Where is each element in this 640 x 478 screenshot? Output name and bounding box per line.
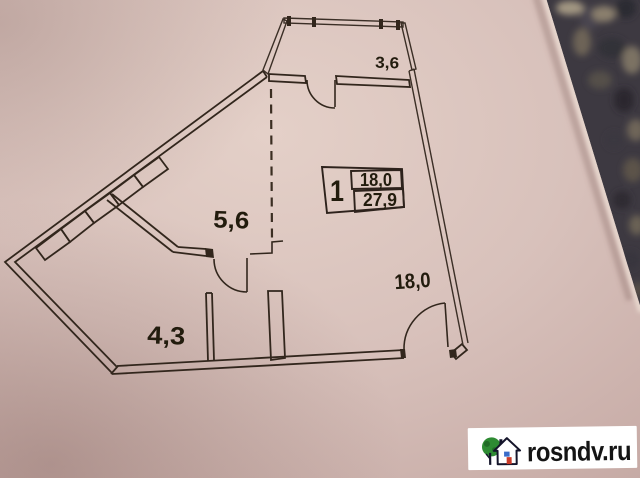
balcony-window-post <box>287 16 291 26</box>
table-total-area-value: 27,9 <box>363 190 397 210</box>
watermark: rosndv.ru <box>468 426 638 470</box>
balcony-window-post <box>312 17 316 27</box>
label-room-area: 18,0 <box>394 269 432 294</box>
watermark-site-text: rosndv.ru <box>527 436 631 467</box>
house-window <box>504 452 510 457</box>
entry-door-left-jamb <box>400 349 406 358</box>
label-niche-area: 5,6 <box>213 206 250 234</box>
floorplan-canvas: 1 18,0 27,9 3,6 5,6 4,3 18,0 rosndv.ru <box>0 0 640 478</box>
niche-door-jamb-post <box>205 248 214 258</box>
floorplan-photo: 1 18,0 27,9 3,6 5,6 4,3 18,0 rosndv.ru <box>0 0 640 478</box>
label-hall-area: 4,3 <box>147 321 186 350</box>
entry-door-hinge-post <box>449 349 457 358</box>
paper-shadow-top-left <box>0 0 640 478</box>
house-door <box>507 457 512 464</box>
table-living-area-value: 18,0 <box>360 170 392 190</box>
table-flat-number: 1 <box>330 175 344 208</box>
balcony-window-post <box>379 19 383 29</box>
label-balcony-area: 3,6 <box>375 55 400 73</box>
balcony-window-post <box>396 20 400 30</box>
